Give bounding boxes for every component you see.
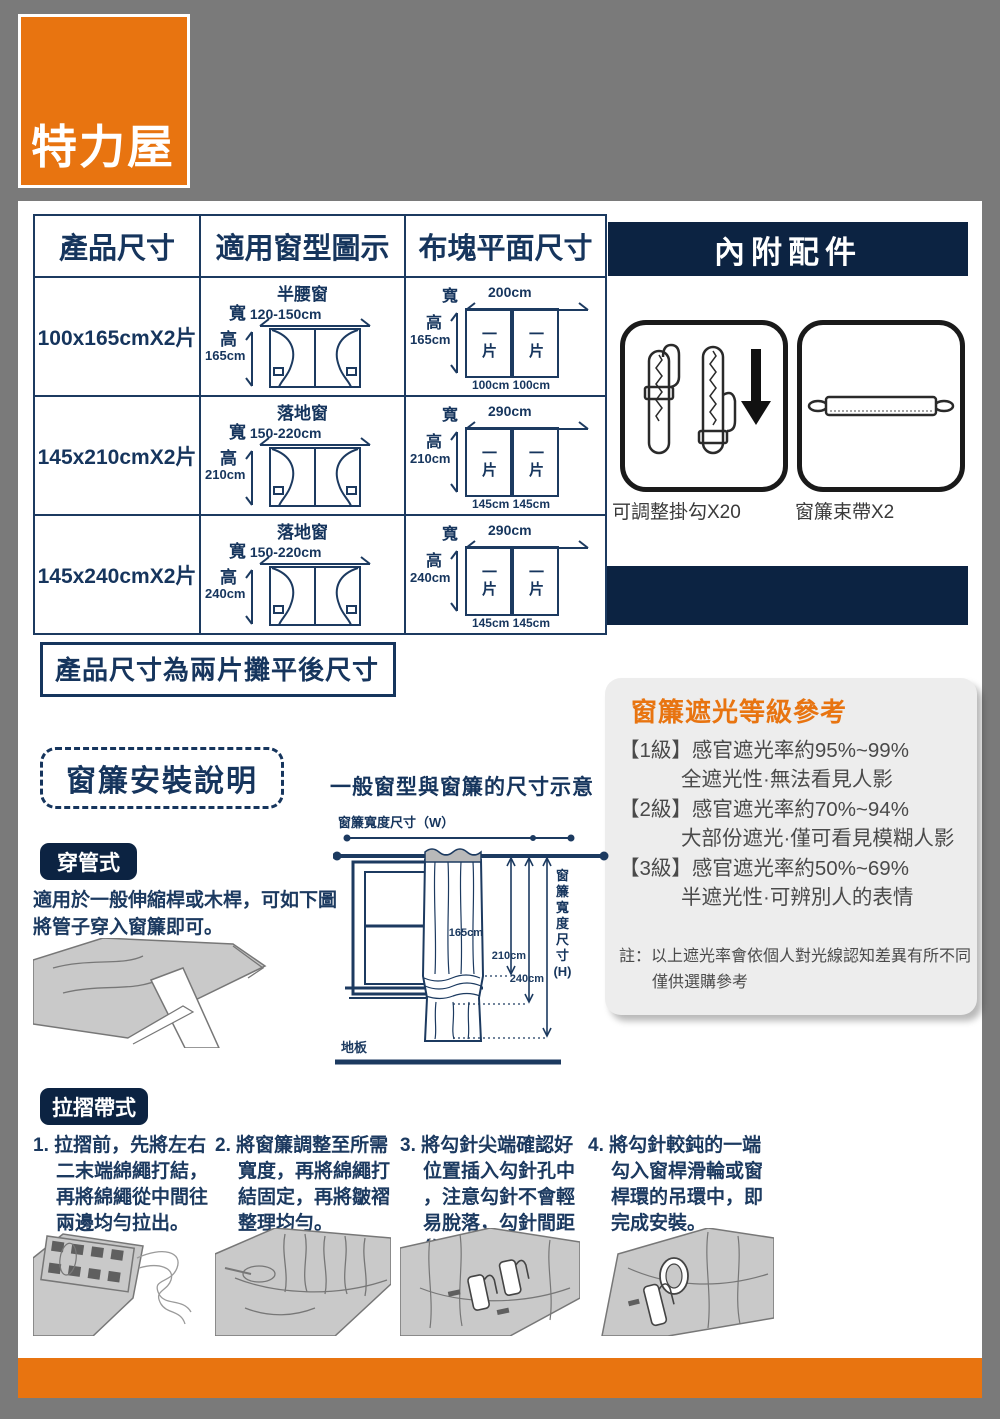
window-type-cell: 落地窗 寬 150-220cm 高 210cm xyxy=(200,396,405,515)
content-panel: 產品尺寸 適用窗型圖示 布塊平面尺寸 100x165cmX2片 半腰窗 寬 12… xyxy=(18,201,982,1398)
flat-width-label: 寬 xyxy=(442,401,458,425)
flat-height-value: 210cm xyxy=(410,451,450,466)
height-210-label: 210cm xyxy=(492,950,526,962)
height-label: 高 xyxy=(220,444,237,469)
blackout-level-rate: 【1級】感官遮光率約95%~99% xyxy=(619,736,969,765)
piece-box: 一片 xyxy=(465,546,512,616)
level-tag: 【3級】 xyxy=(619,857,692,880)
header-window-type: 適用窗型圖示 xyxy=(200,215,405,277)
pleat-step-2: 2. 將窗簾調整至所需 寬度，再將綿繩打 結固定，再將皺褶 整理均勻。 xyxy=(215,1133,391,1237)
height-arrow-icon xyxy=(450,309,463,377)
navy-divider-band xyxy=(607,566,968,625)
piece-box: 一片 xyxy=(512,308,559,378)
piece-widths: 145cm 145cm xyxy=(456,497,566,511)
window-height-value: 210cm xyxy=(205,467,245,482)
rod-pocket-illustration xyxy=(33,938,305,1048)
width-char: 寬 xyxy=(229,304,246,323)
step-line: ，注意勾針不會輕 xyxy=(400,1185,576,1211)
product-size-value: 145x240cmX2片 xyxy=(38,565,197,588)
piece-label: 一片 xyxy=(525,564,546,598)
piece-label: 一片 xyxy=(478,445,499,479)
accessory-label: 窗簾束帶X2 xyxy=(795,497,894,524)
blackout-note: 僅供選購參考 xyxy=(652,968,748,992)
product-size-value: 145x210cmX2片 xyxy=(38,446,197,469)
level-tag: 【2級】 xyxy=(619,798,692,821)
level-rate: 感官遮光率約50%~69% xyxy=(692,857,909,880)
piece-widths: 145cm 145cm xyxy=(456,616,566,630)
piece-box: 一片 xyxy=(465,427,512,497)
flat-height-value: 165cm xyxy=(410,332,450,347)
footer-orange-bar xyxy=(18,1358,982,1398)
flat-height-label: 高 xyxy=(426,309,442,333)
piece-label: 一片 xyxy=(525,326,546,360)
height-arrow-icon xyxy=(450,428,463,496)
width-char: 寬 xyxy=(229,423,246,442)
step-line: 結固定，再將皺褶 xyxy=(215,1185,391,1211)
flat-size-note: 產品尺寸為兩片攤平後尺寸 xyxy=(40,642,396,697)
step-line: 2. 將窗簾調整至所需 xyxy=(215,1133,391,1159)
pleat-step-4: 4. 將勾針較鈍的一端 勾入窗桿滑輪或窗 桿環的吊環中，即 完成安裝。 xyxy=(588,1133,764,1237)
header-flat-size: 布塊平面尺寸 xyxy=(405,215,606,277)
flat-size-cell: 寬 290cm 高 210cm 一片 一片 145cm 145cm xyxy=(405,396,606,515)
step-line: 4. 將勾針較鈍的一端 xyxy=(588,1133,764,1159)
width-char: 寬 xyxy=(229,542,246,561)
product-spec-table: 產品尺寸 適用窗型圖示 布塊平面尺寸 100x165cmX2片 半腰窗 寬 12… xyxy=(33,214,607,635)
pleat-step-1: 1. 拉摺前，先將左右 二末端綿繩打結， 再將綿繩從中間往 兩邊均勻拉出。 xyxy=(33,1133,209,1237)
level-rate: 感官遮光率約95%~99% xyxy=(692,739,909,762)
product-size-cell: 145x210cmX2片 xyxy=(34,396,200,515)
product-size-cell: 145x240cmX2片 xyxy=(34,515,200,634)
header-product-size: 產品尺寸 xyxy=(34,215,200,277)
flat-height-value: 240cm xyxy=(410,570,450,585)
step-line: 再將綿繩從中間往 xyxy=(33,1185,209,1211)
accessory-hooks-box xyxy=(620,320,788,492)
pleat-tape-badge-label: 拉摺帶式 xyxy=(52,1092,136,1122)
step-line: 3. 將勾針尖端確認好 xyxy=(400,1133,576,1159)
window-height-value: 165cm xyxy=(205,348,245,363)
flat-width-value: 290cm xyxy=(488,522,532,538)
accessories-title: 內附配件 xyxy=(714,227,862,272)
leaflet-page: { "colors":{"page_bg":"#7a7a7a","navy_ba… xyxy=(0,0,1000,1419)
window-curtain-icon xyxy=(261,445,369,509)
piece-box: 一片 xyxy=(512,427,559,497)
flat-height-label: 高 xyxy=(426,547,442,571)
blackout-title: 窗簾遮光等級參考 xyxy=(631,692,847,729)
height-arrow-icon xyxy=(245,328,258,390)
install-title-box: 窗簾安裝說明 xyxy=(40,747,284,809)
brand-logo-text: 特力屋 xyxy=(31,111,175,177)
blackout-reference-box: 窗簾遮光等級參考 【1級】感官遮光率約95%~99% 全遮光性·無法看見人影 【… xyxy=(605,678,977,1015)
product-size-value: 100x165cmX2片 xyxy=(38,327,197,350)
floor-label: 地板 xyxy=(341,1040,368,1055)
window-height-value: 240cm xyxy=(205,586,245,601)
level-rate: 感官遮光率約70%~94% xyxy=(692,798,909,821)
step-line: 1. 拉摺前，先將左右 xyxy=(33,1133,209,1159)
flat-height-label: 高 xyxy=(426,428,442,452)
adjustable-hook-icon xyxy=(625,325,783,487)
step-line: 勾入窗桿滑輪或窗 xyxy=(588,1159,764,1185)
table-header-row: 產品尺寸 適用窗型圖示 布塊平面尺寸 xyxy=(34,215,606,277)
table-row: 145x240cmX2片 落地窗 寬 150-220cm 高 240cm xyxy=(34,515,606,634)
step-line: 寬度，再將綿繩打 xyxy=(215,1159,391,1185)
pleat-tape-badge: 拉摺帶式 xyxy=(40,1088,148,1125)
step2-illustration xyxy=(215,1228,391,1336)
step-line: 二末端綿繩打結， xyxy=(33,1159,209,1185)
window-curtain-icon xyxy=(261,326,369,390)
product-size-cell: 100x165cmX2片 xyxy=(34,277,200,396)
accessories-title-band: 內附配件 xyxy=(608,222,968,276)
step-line: 位置插入勾針孔中 xyxy=(400,1159,576,1185)
blackout-level-rate: 【2級】感官遮光率約70%~94% xyxy=(619,795,969,824)
rod-pocket-badge-label: 穿管式 xyxy=(57,847,120,877)
blackout-level-desc: 半遮光性·可辨別人的表情 xyxy=(619,883,969,912)
piece-box: 一片 xyxy=(465,308,512,378)
rod-pocket-desc-line: 適用於一般伸縮桿或木桿，可如下圖 xyxy=(33,887,337,914)
blackout-level-desc: 大部份遮光·僅可看見模糊人影 xyxy=(619,824,969,853)
brand-logo: 特力屋 xyxy=(18,14,190,188)
step-line: 桿環的吊環中，即 xyxy=(588,1185,764,1211)
curtain-height-label: 窗簾寬度尺寸(H) xyxy=(553,868,572,980)
blackout-levels: 【1級】感官遮光率約95%~99% 全遮光性·無法看見人影 【2級】感官遮光率約… xyxy=(619,736,969,913)
flat-width-value: 290cm xyxy=(488,403,532,419)
height-arrow-icon xyxy=(245,447,258,509)
piece-label: 一片 xyxy=(478,326,499,360)
blackout-level-rate: 【3級】感官遮光率約50%~69% xyxy=(619,854,969,883)
piece-box: 一片 xyxy=(512,546,559,616)
flat-size-cell: 寬 200cm 高 165cm 一片 一片 100cm 100cm xyxy=(405,277,606,396)
flat-width-label: 寬 xyxy=(442,282,458,306)
height-label: 高 xyxy=(220,563,237,588)
flat-width-label: 寬 xyxy=(442,520,458,544)
height-165-label: 165cm xyxy=(449,927,483,939)
flat-width-value: 200cm xyxy=(488,284,532,300)
install-title: 窗簾安裝說明 xyxy=(66,756,258,800)
window-type-cell: 落地窗 寬 150-220cm 高 240cm xyxy=(200,515,405,634)
height-240-label: 240cm xyxy=(510,973,544,985)
height-arrow-icon xyxy=(245,566,258,628)
table-row: 145x210cmX2片 落地窗 寬 150-220cm 高 210cm xyxy=(34,396,606,515)
piece-widths: 100cm 100cm xyxy=(456,378,566,392)
window-curtain-icon xyxy=(261,564,369,628)
window-type-cell: 半腰窗 寬 120-150cm 高 165cm xyxy=(200,277,405,396)
step4-illustration xyxy=(588,1228,774,1336)
accessory-label: 可調整掛勾X20 xyxy=(612,497,741,524)
rod-pocket-desc-line: 將管子穿入窗簾即可。 xyxy=(33,914,337,941)
height-label: 高 xyxy=(220,325,237,350)
blackout-level-desc: 全遮光性·無法看見人影 xyxy=(619,765,969,794)
rod-pocket-badge: 穿管式 xyxy=(40,843,137,880)
diagram-title: 一般窗型與窗簾的尺寸示意 xyxy=(330,771,594,801)
piece-label: 一片 xyxy=(525,445,546,479)
blackout-note: 註：以上遮光率會依個人對光線認知差異有所不同 xyxy=(619,942,971,966)
flat-size-cell: 寬 290cm 高 240cm 一片 一片 145cm 145cm xyxy=(405,515,606,634)
step1-illustration xyxy=(33,1228,203,1336)
step3-illustration xyxy=(400,1228,580,1336)
height-arrow-icon xyxy=(450,547,463,615)
accessory-tieband-box xyxy=(797,320,965,492)
piece-label: 一片 xyxy=(478,564,499,598)
table-row: 100x165cmX2片 半腰窗 寬 120-150cm 高 165cm xyxy=(34,277,606,396)
curtain-tieband-icon xyxy=(802,325,960,487)
rod-pocket-desc: 適用於一般伸縮桿或木桿，可如下圖 將管子穿入窗簾即可。 xyxy=(33,887,337,941)
level-tag: 【1級】 xyxy=(619,739,692,762)
